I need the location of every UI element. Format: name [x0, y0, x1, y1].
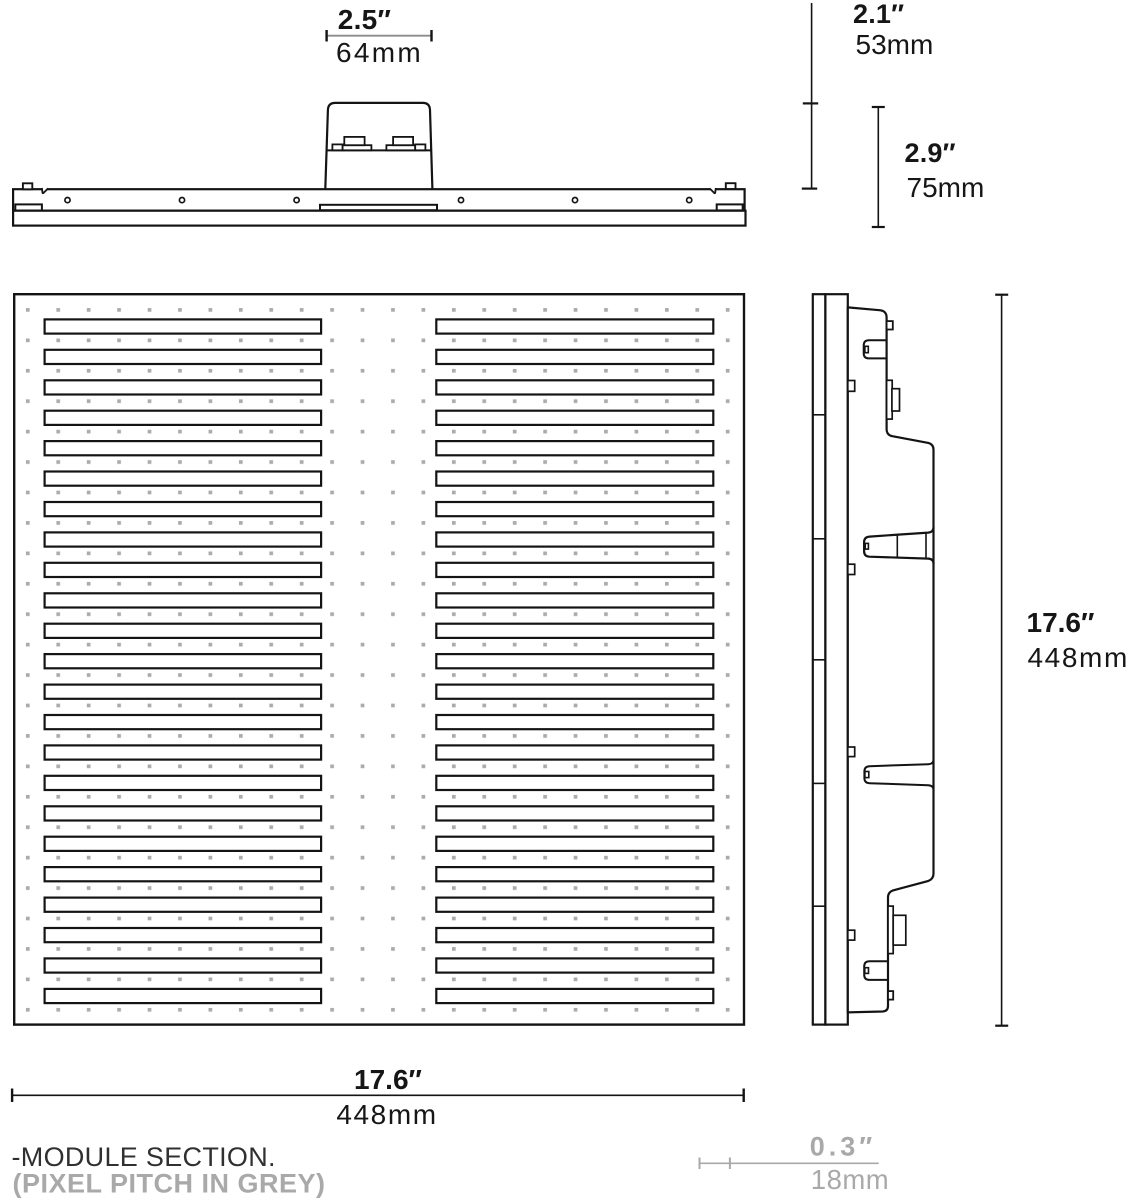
svg-text:448mm: 448mm: [1028, 642, 1129, 673]
svg-text:2.5″: 2.5″: [338, 4, 392, 35]
svg-text:17.6″: 17.6″: [354, 1064, 422, 1095]
svg-text:53mm: 53mm: [856, 29, 934, 60]
svg-text:64mm: 64mm: [336, 37, 423, 68]
svg-text:0.3″: 0.3″: [810, 1132, 876, 1162]
svg-text:17.6″: 17.6″: [1027, 607, 1095, 638]
svg-text:2.9″: 2.9″: [905, 138, 956, 168]
svg-text:(PIXEL PITCH IN GREY): (PIXEL PITCH IN GREY): [13, 1169, 326, 1199]
svg-text:-MODULE SECTION.: -MODULE SECTION.: [12, 1142, 276, 1172]
svg-text:18mm: 18mm: [811, 1164, 889, 1195]
svg-text:75mm: 75mm: [907, 172, 985, 203]
svg-text:2.1″: 2.1″: [853, 0, 904, 29]
svg-text:448mm: 448mm: [336, 1099, 437, 1130]
